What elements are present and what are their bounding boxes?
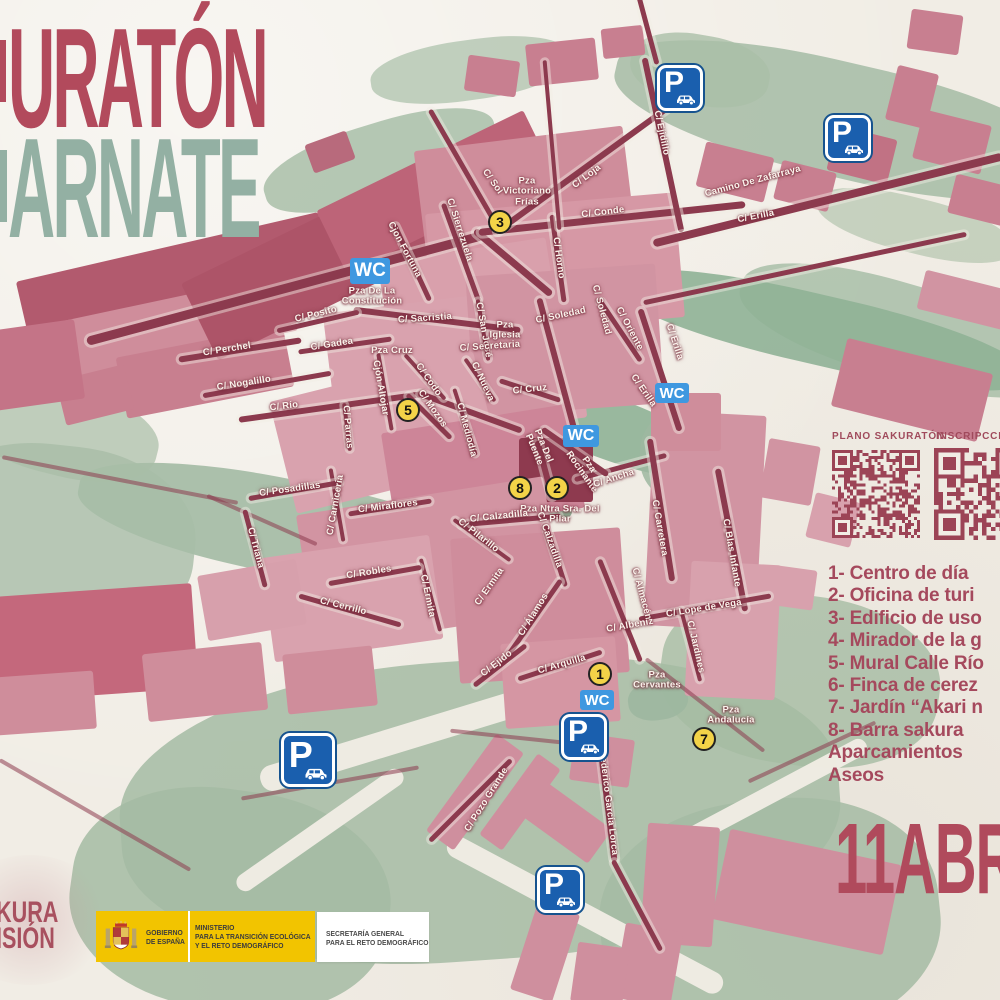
legend: 1- Centro de día2- Oficina de turi3- Edi…: [828, 563, 1000, 787]
parking-sign: P: [281, 733, 335, 787]
wc-badge: WC: [580, 690, 614, 710]
partial-logo-line2: ISIÓN: [0, 924, 55, 954]
map-marker-5: 5: [396, 398, 420, 422]
wc-badge: WC: [350, 258, 390, 284]
building-block: [142, 642, 268, 722]
ministry-text: MINISTERIO PARA LA TRANSICIÓN ECOLÓGICA …: [195, 923, 311, 950]
parking-car-icon: [302, 765, 330, 781]
building-block: [570, 942, 630, 1000]
building-block: [601, 25, 646, 59]
map-marker-2: 2: [545, 476, 569, 500]
map-marker-8: 8: [508, 476, 532, 500]
building-block: [282, 645, 378, 714]
legend-item: 4- Mirador de la g: [828, 630, 1000, 652]
street-label: Pza Andalucía: [701, 706, 761, 727]
title-clipped-letter-fragment: [0, 150, 7, 222]
qr-inscripcion-label: INSCRIPCCION: [936, 431, 1000, 442]
building-block: [525, 37, 599, 86]
legend-item: 7- Jardín “Akari n: [828, 697, 1000, 719]
map-marker-1: 1: [588, 662, 612, 686]
parking-car-icon: [554, 894, 578, 908]
parking-sign: P: [825, 115, 871, 161]
spain-coat-of-arms: [104, 919, 138, 955]
legend-item: 1- Centro de día: [828, 563, 1000, 585]
legend-item: 6- Finca de cerez: [828, 675, 1000, 697]
secretary-text: SECRETARÍA GENERAL PARA EL RETO DEMOGRÁF…: [326, 929, 429, 947]
qr-code-plano: [832, 450, 920, 538]
event-date: 11ABR: [835, 809, 1000, 909]
legend-item: Aseos: [828, 765, 1000, 787]
building-block: [906, 9, 963, 56]
street-label: C/ Erilla: [737, 208, 775, 225]
wc-badge: WC: [655, 383, 689, 403]
parking-car-icon: [842, 142, 866, 156]
title-clipped-letter-fragment: [0, 40, 6, 102]
logo-divider: [188, 911, 190, 962]
legend-item: Aparcamientos: [828, 742, 1000, 764]
parking-sign: P: [537, 867, 583, 913]
parking-car-icon: [578, 741, 602, 755]
parking-sign: P: [657, 65, 703, 111]
legend-item: 3- Edificio de uso: [828, 608, 1000, 630]
wc-badge: WC: [563, 425, 599, 447]
poster-title-line2: ARNATE: [8, 118, 259, 260]
government-text: GOBIERNO DE ESPAÑA: [146, 928, 185, 946]
street-label: Pza Cruz: [371, 346, 413, 356]
street-label: Pza De La Constitución: [330, 287, 414, 308]
qr-code-inscripcion: [934, 448, 1000, 540]
sakuraton-map-poster: C/ SolC/ SierrezuelaCjon FortunaPza Vict…: [0, 0, 1000, 1000]
street-label: Pza Cervantes: [627, 671, 687, 692]
parking-car-icon: [674, 92, 698, 106]
building-block: [464, 55, 521, 98]
parking-sign: P: [561, 714, 607, 760]
qr-plano-label: PLANO SAKURATÓN: [832, 431, 945, 442]
government-logo-block: GOBIERNO DE ESPAÑA MINISTERIO PARA LA TR…: [96, 911, 315, 962]
secretary-logo-block: SECRETARÍA GENERAL PARA EL RETO DEMOGRÁF…: [317, 912, 429, 962]
building-block: [0, 319, 85, 411]
legend-item: 2- Oficina de turi: [828, 585, 1000, 607]
map-marker-7: 7: [692, 727, 716, 751]
street-label: Pza Victoriano Frías: [494, 176, 560, 207]
building-block: [772, 565, 817, 610]
building-block: [0, 671, 97, 736]
map-marker-3: 3: [488, 210, 512, 234]
building-block: [759, 438, 821, 506]
street-label: C/ Erilla: [663, 323, 684, 362]
legend-item: 5- Mural Calle Río: [828, 653, 1000, 675]
legend-item: 8- Barra sakura: [828, 720, 1000, 742]
